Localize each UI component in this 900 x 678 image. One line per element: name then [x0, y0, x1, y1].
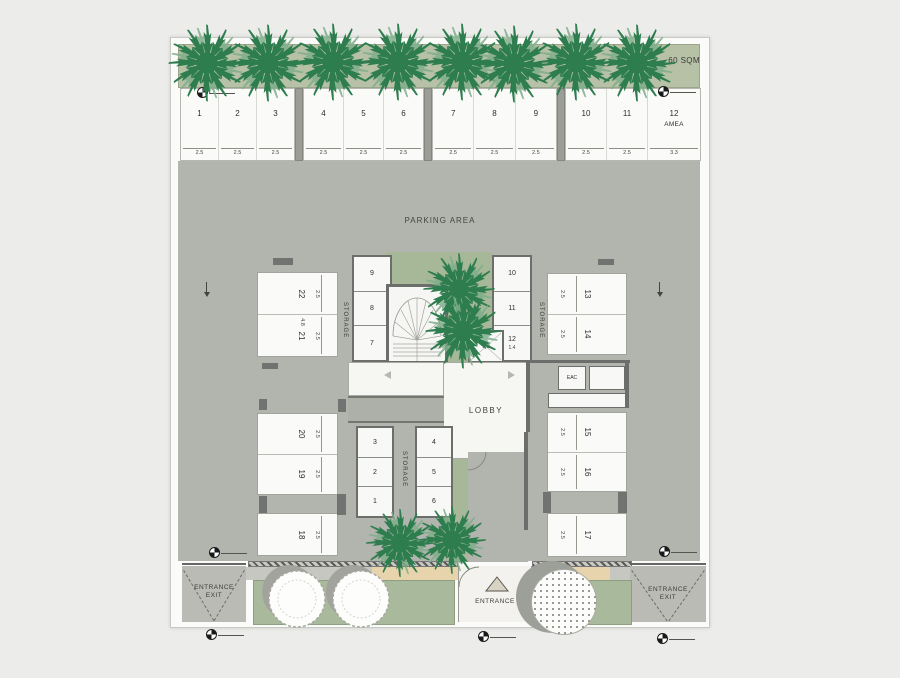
parking-stall-block: 202.5 192.5 [257, 413, 338, 495]
pillar [273, 258, 293, 265]
parking-area-label: PARKING AREA [380, 216, 500, 225]
stall-number: 9 [516, 109, 556, 118]
amea-label: AMEA [648, 121, 700, 128]
driveway-edge-line [630, 563, 706, 565]
parking-stall-amea: 12AMEA3.3 [648, 89, 700, 160]
door-arc [468, 452, 486, 470]
parking-stall: 182.5 [258, 514, 337, 555]
parking-stall: 162.5 [548, 453, 626, 492]
wall [524, 432, 528, 530]
stall-width-dim: 2.5 [556, 465, 566, 479]
dimension-line [576, 415, 577, 450]
pillar [338, 399, 346, 412]
stall-width-dim: 2.5 [474, 150, 514, 156]
storage-unit: 9 [354, 257, 390, 292]
parking-stall-group: 12.5 22.5 32.5 [180, 88, 295, 161]
parking-stall: 62.5 [384, 89, 423, 160]
stall-width-dim: 2.5 [344, 150, 383, 156]
stall-width-dim: 2.5 [311, 329, 321, 343]
storage-unit: 8 [354, 292, 390, 327]
storage-label: STORAGE [339, 287, 351, 353]
stall-width-dim: 2.5 [311, 427, 321, 441]
stall-number: 13 [582, 287, 592, 301]
stall-width-dim: 2.5 [311, 467, 321, 481]
stall-width-dim: 2.5 [566, 150, 606, 156]
tree [260, 563, 334, 637]
parking-stall: 72.5 [433, 89, 474, 160]
parking-stall: 22.5 [219, 89, 257, 160]
parking-stall: 12.5 [181, 89, 219, 160]
parking-stall: 102.5 [566, 89, 607, 160]
dimension-line [576, 516, 577, 554]
stall-number: 7 [433, 109, 473, 118]
dimension-line [321, 516, 322, 553]
dimension-line [518, 148, 554, 149]
parking-stall: 82.5 [474, 89, 515, 160]
driveway-edge-line [182, 563, 246, 565]
parking-stall-group: 72.5 82.5 92.5 [432, 88, 557, 161]
drive-direction-arrow-icon [659, 282, 660, 295]
entrance-exit-label: ENTRANCEEXIT [182, 584, 246, 601]
utility-room [589, 366, 625, 390]
pillar [262, 363, 278, 369]
survey-marker-icon [658, 86, 669, 97]
stall-width-dim: 2.5 [311, 528, 321, 542]
area-label: 60 SQM [612, 56, 700, 65]
stall-number: 18 [296, 528, 306, 542]
stall-number: 3 [257, 109, 294, 118]
survey-marker-icon [197, 87, 208, 98]
stall-width-dim: 2.5 [556, 327, 566, 341]
survey-marker-icon [657, 633, 668, 644]
storage-unit: 7 [354, 326, 390, 360]
stall-number: 5 [344, 109, 383, 118]
stall-number: 17 [582, 528, 592, 542]
driveway-left: ENTRANCEEXIT [182, 566, 246, 622]
stall-number: 21 [296, 329, 306, 343]
entrance-marker-triangle [485, 576, 509, 592]
storage-unit-number: 10 [508, 270, 516, 277]
parking-stall: 192.5 [258, 455, 337, 495]
stall-number: 15 [582, 425, 592, 439]
eac-label: EAC [567, 375, 577, 381]
parking-stall: 112.5 [607, 89, 648, 160]
stall-width-dim: 2.5 [219, 150, 256, 156]
storage-unit-number: 11 [508, 305, 515, 312]
stall-width-dim: 2.5 [607, 150, 647, 156]
stall-number: 1 [181, 109, 218, 118]
parking-stall: 52.5 [344, 89, 384, 160]
stall-width-dim: 2.5 [516, 150, 556, 156]
dimension-line [321, 457, 322, 493]
pillar [259, 399, 267, 410]
storage-label: STORAGE [397, 433, 411, 505]
dimension-line [568, 148, 604, 149]
storage-unit-number: 8 [370, 305, 374, 312]
stall-number: 12 [648, 109, 700, 118]
dimension-line [306, 148, 341, 149]
stall-number: 11 [607, 109, 647, 118]
parking-stall: 42.5 [304, 89, 344, 160]
storage-unit: 10 [494, 257, 530, 292]
tree [531, 569, 597, 635]
storage-unit: 4 [417, 428, 451, 458]
stall-number: 22 [296, 287, 306, 301]
driveway-right: ENTRANCEEXIT [630, 566, 706, 622]
parking-stall: 152.5 [548, 413, 626, 453]
parking-stall: 172.5 [548, 514, 626, 556]
parking-stall-block: 152.5 162.5 [547, 412, 627, 492]
door-direction-marker [384, 371, 391, 379]
storage-unit-number: 6 [432, 498, 436, 505]
dimension-line [576, 317, 577, 353]
dimension-line [609, 148, 645, 149]
storage-unit: 3 [358, 428, 392, 458]
dimension-line [221, 148, 254, 149]
canopy-band [348, 396, 444, 423]
survey-marker-icon [478, 631, 489, 642]
dimension-line [259, 148, 292, 149]
storage-unit-number: 3 [373, 439, 377, 446]
group-divider-wall [424, 88, 432, 161]
wall [530, 360, 630, 363]
storage-unit-number: 7 [370, 340, 374, 347]
pillar [543, 492, 551, 513]
pillar [598, 259, 614, 265]
stall-number: 10 [566, 109, 606, 118]
stall-width-dim: 2.5 [556, 425, 566, 439]
storage-unit: 6 [417, 487, 451, 516]
floor-plan-page: 60 SQM 12.5 22.5 32.5 42.5 52.5 62.5 72.… [0, 0, 900, 678]
parking-stall: 202.5 [258, 414, 337, 455]
stall-length-dim: 4.8 [296, 315, 306, 329]
storage-unit: 5 [417, 458, 451, 488]
stall-width-dim: 3.3 [648, 150, 700, 156]
planting-strip [178, 44, 700, 88]
stall-width-dim: 2.5 [384, 150, 423, 156]
parking-stall-block: 182.5 [257, 513, 338, 556]
stall-width-dim: 2.5 [311, 287, 321, 301]
parking-stall: 142.5 [548, 315, 626, 355]
utility-room [548, 393, 626, 408]
pillar [337, 494, 346, 515]
pillar [618, 492, 627, 513]
lobby-label: LOBBY [447, 406, 525, 415]
dimension-line [576, 276, 577, 312]
wall [526, 362, 530, 432]
storage-unit-number: 1 [373, 498, 377, 505]
storage-label: STORAGE [535, 287, 547, 353]
parking-stall: 222.5 [258, 273, 337, 315]
parking-stall-block: 172.5 [547, 513, 627, 557]
storage-column: 3 2 1 [356, 426, 394, 518]
dimension-line [476, 148, 512, 149]
survey-marker-icon [209, 547, 220, 558]
stall-width-dim: 2.5 [556, 287, 566, 301]
stall-number: 14 [582, 327, 592, 341]
stall-number: 20 [296, 427, 306, 441]
stall-width-dim: 2.5 [433, 150, 473, 156]
parking-stall: 32.5 [257, 89, 294, 160]
courtyard-planting [386, 252, 492, 285]
dimension-line [435, 148, 471, 149]
entrance-exit-label: ENTRANCEEXIT [630, 586, 706, 603]
dimension-line [650, 148, 698, 149]
storage-unit-number: 5 [432, 469, 436, 476]
stall-width-dim: 2.5 [181, 150, 218, 156]
storage-unit-number: 9 [370, 270, 374, 277]
storage-unit-number: 2 [373, 469, 377, 476]
door-arc [459, 567, 479, 587]
parking-stall: 92.5 [516, 89, 556, 160]
parking-stall-block: 132.5 142.5 [547, 273, 627, 355]
stall-width-dim: 2.5 [556, 528, 566, 542]
parking-stall-group: 42.5 52.5 62.5 [303, 88, 424, 161]
dimension-line [321, 416, 322, 452]
stall-number: 6 [384, 109, 423, 118]
group-divider-wall [295, 88, 303, 161]
storage-unit: 11 [494, 292, 530, 327]
sidewalk [610, 567, 632, 580]
door-direction-marker [508, 371, 515, 379]
stall-width-dim: 2.5 [304, 150, 343, 156]
stall-number: 2 [219, 109, 256, 118]
dimension-line [321, 275, 322, 312]
elevator-dim: 1.8 [470, 332, 502, 361]
storage-unit-dim: 1.4 [509, 345, 516, 351]
stall-width-dim: 2.5 [257, 150, 294, 156]
storage-unit-number: 4 [432, 439, 436, 446]
drive-direction-arrow-icon [206, 282, 207, 295]
staircase [386, 284, 448, 364]
dimension-line [576, 455, 577, 490]
pillar [259, 496, 267, 513]
dimension-line [321, 317, 322, 354]
eac-room: EAC [558, 366, 586, 390]
storage-unit: 2 [358, 458, 392, 488]
dimension-line [183, 148, 216, 149]
stall-number: 16 [582, 465, 592, 479]
survey-marker-icon [206, 629, 217, 640]
storage-unit-number: 12 [508, 336, 516, 343]
parking-stall: 132.5 [548, 274, 626, 315]
dimension-line [346, 148, 381, 149]
elevator: 1.8 [468, 330, 504, 363]
stall-number: 19 [296, 467, 306, 481]
storage-unit: 1 [358, 487, 392, 516]
stall-number: 4 [304, 109, 343, 118]
dimension-line [386, 148, 421, 149]
parking-stall-group: 102.5 112.5 12AMEA3.3 [565, 88, 701, 161]
survey-marker-icon [659, 546, 670, 557]
group-divider-wall [557, 88, 565, 161]
tree [324, 563, 398, 637]
storage-column: 4 5 6 [415, 426, 453, 518]
stall-number: 8 [474, 109, 514, 118]
